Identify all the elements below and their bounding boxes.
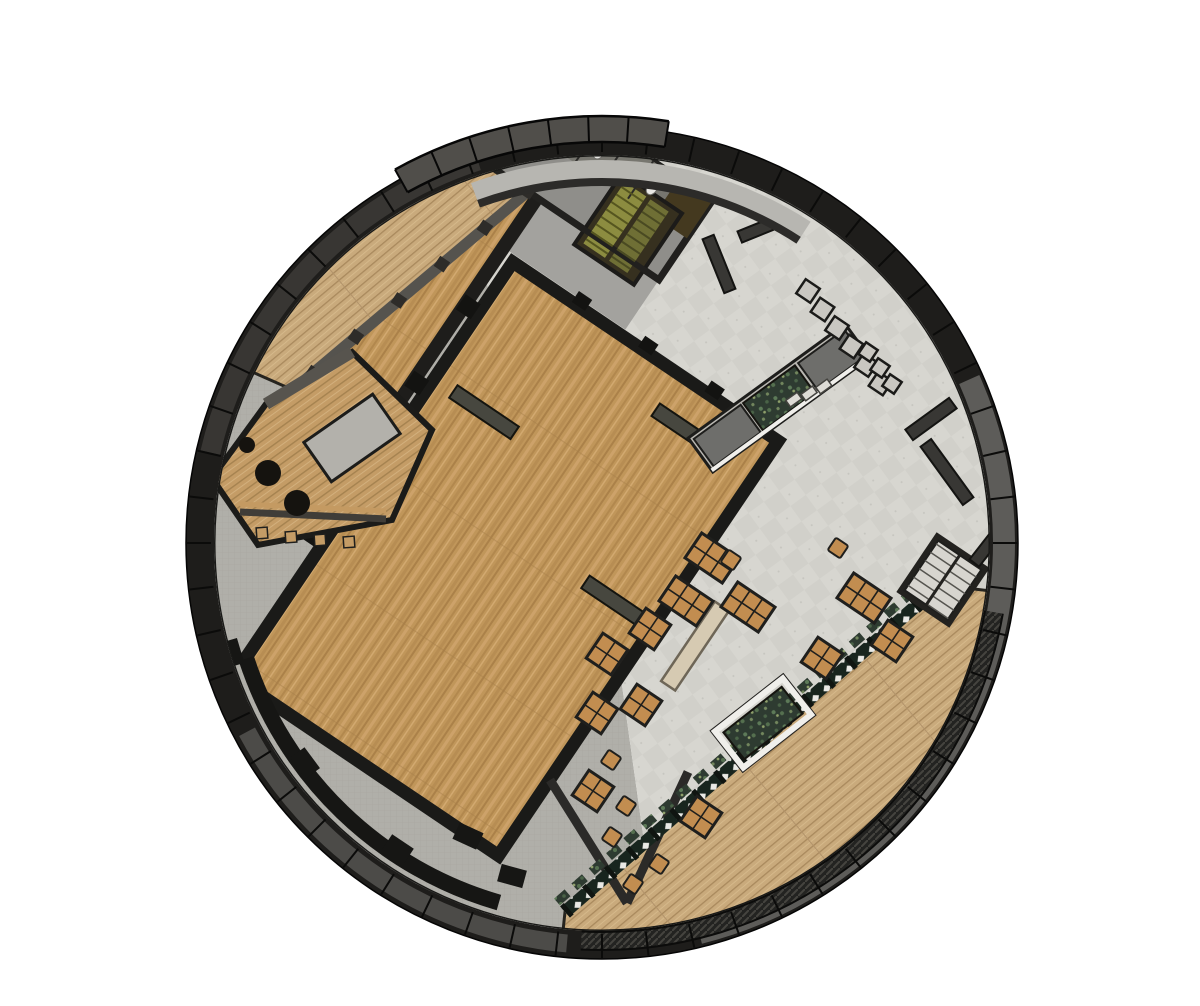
building-interior <box>130 58 1003 933</box>
round-table <box>284 490 310 516</box>
floor-plan-svg <box>0 0 1200 1006</box>
round-table <box>239 437 255 453</box>
bar-stool <box>285 531 297 543</box>
bar-stool <box>343 536 355 548</box>
floorplan-canvas <box>0 0 1200 1006</box>
bar-stool <box>256 527 268 539</box>
round-table <box>255 460 281 486</box>
bar-stool <box>314 534 326 546</box>
